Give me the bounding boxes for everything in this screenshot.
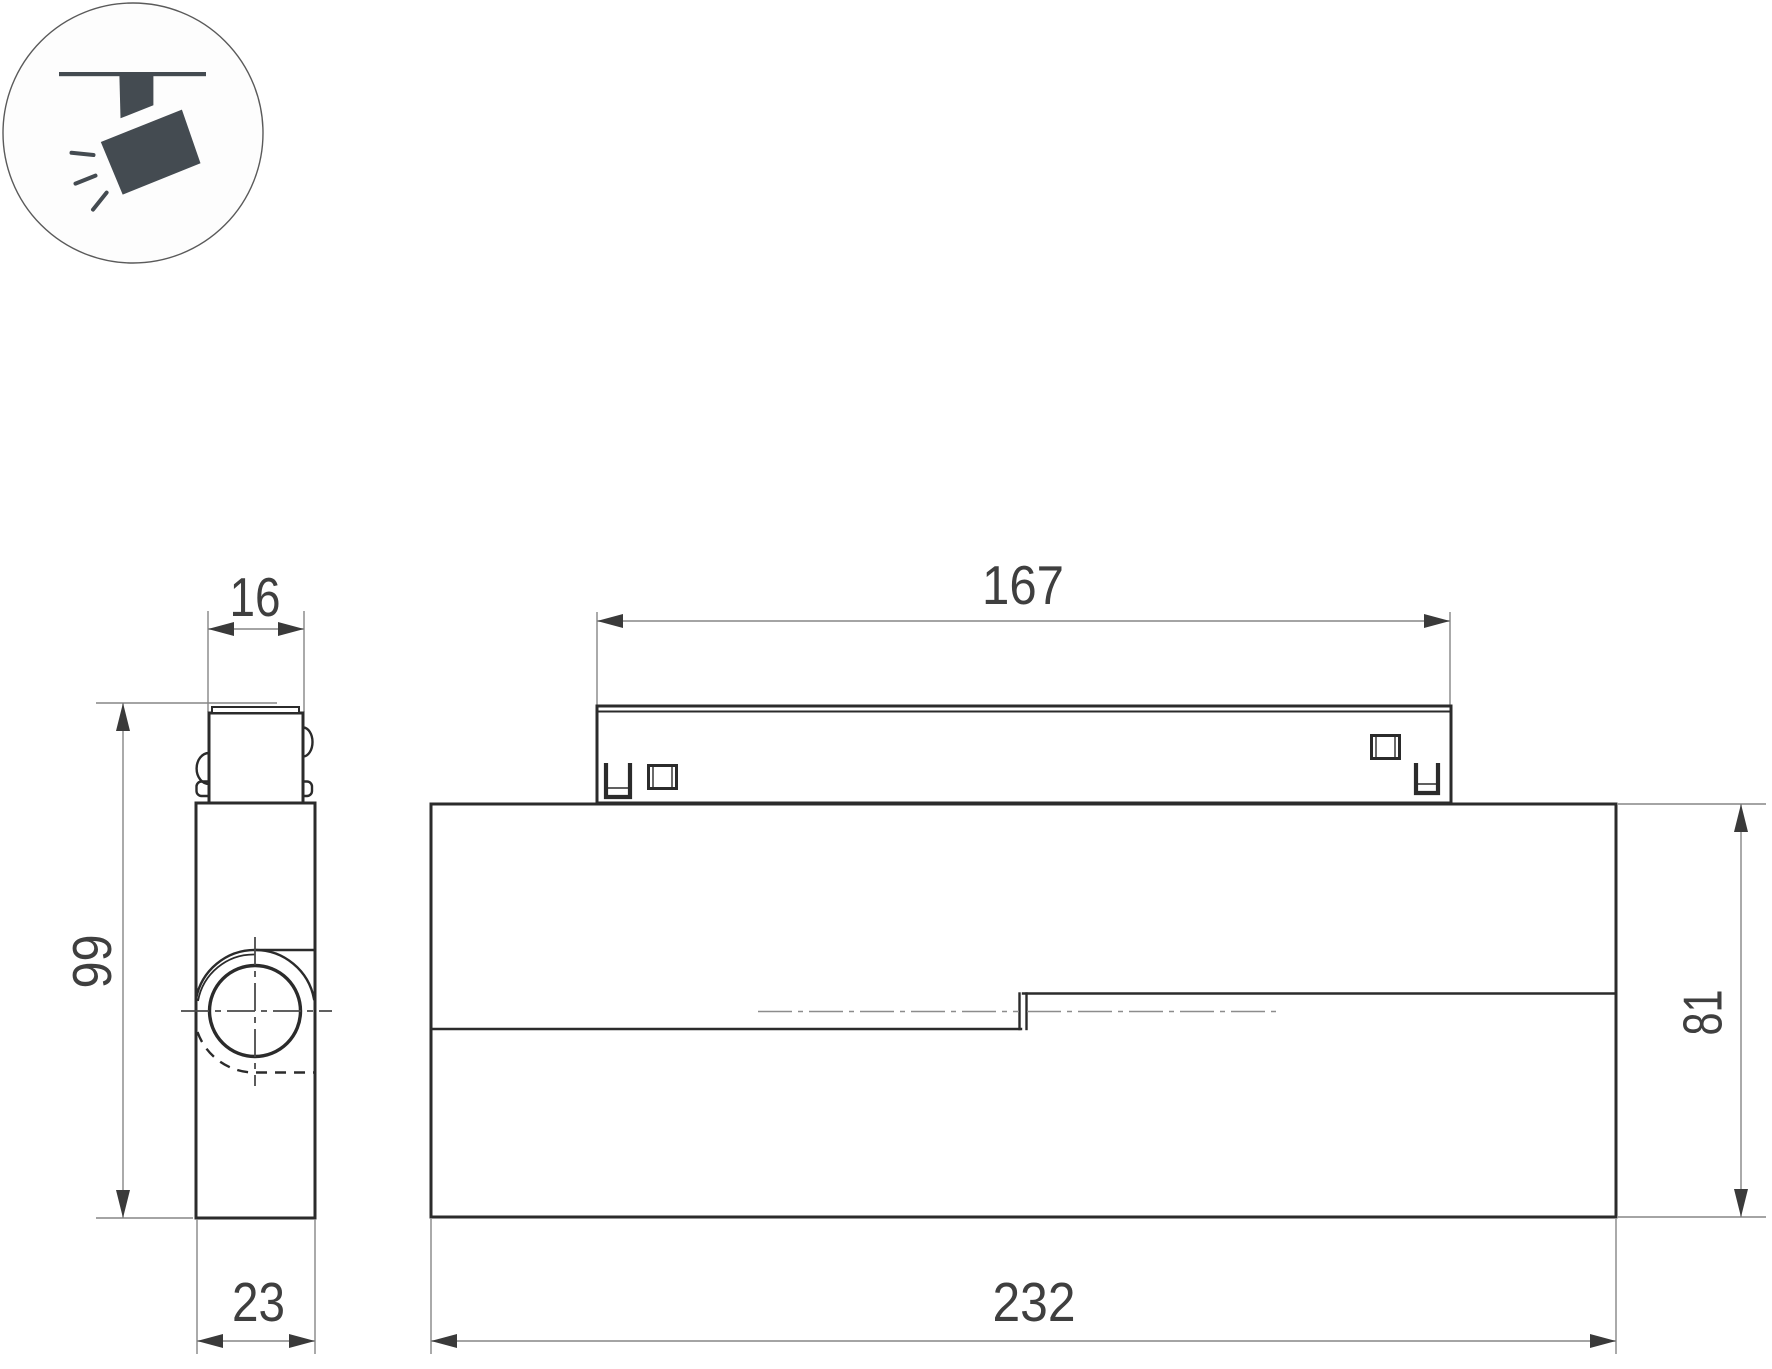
svg-text:16: 16 [230, 566, 281, 628]
svg-text:232: 232 [993, 1271, 1076, 1333]
svg-text:23: 23 [232, 1271, 285, 1333]
svg-text:167: 167 [982, 554, 1064, 616]
svg-text:81: 81 [1672, 990, 1734, 1036]
svg-text:99: 99 [61, 935, 123, 989]
